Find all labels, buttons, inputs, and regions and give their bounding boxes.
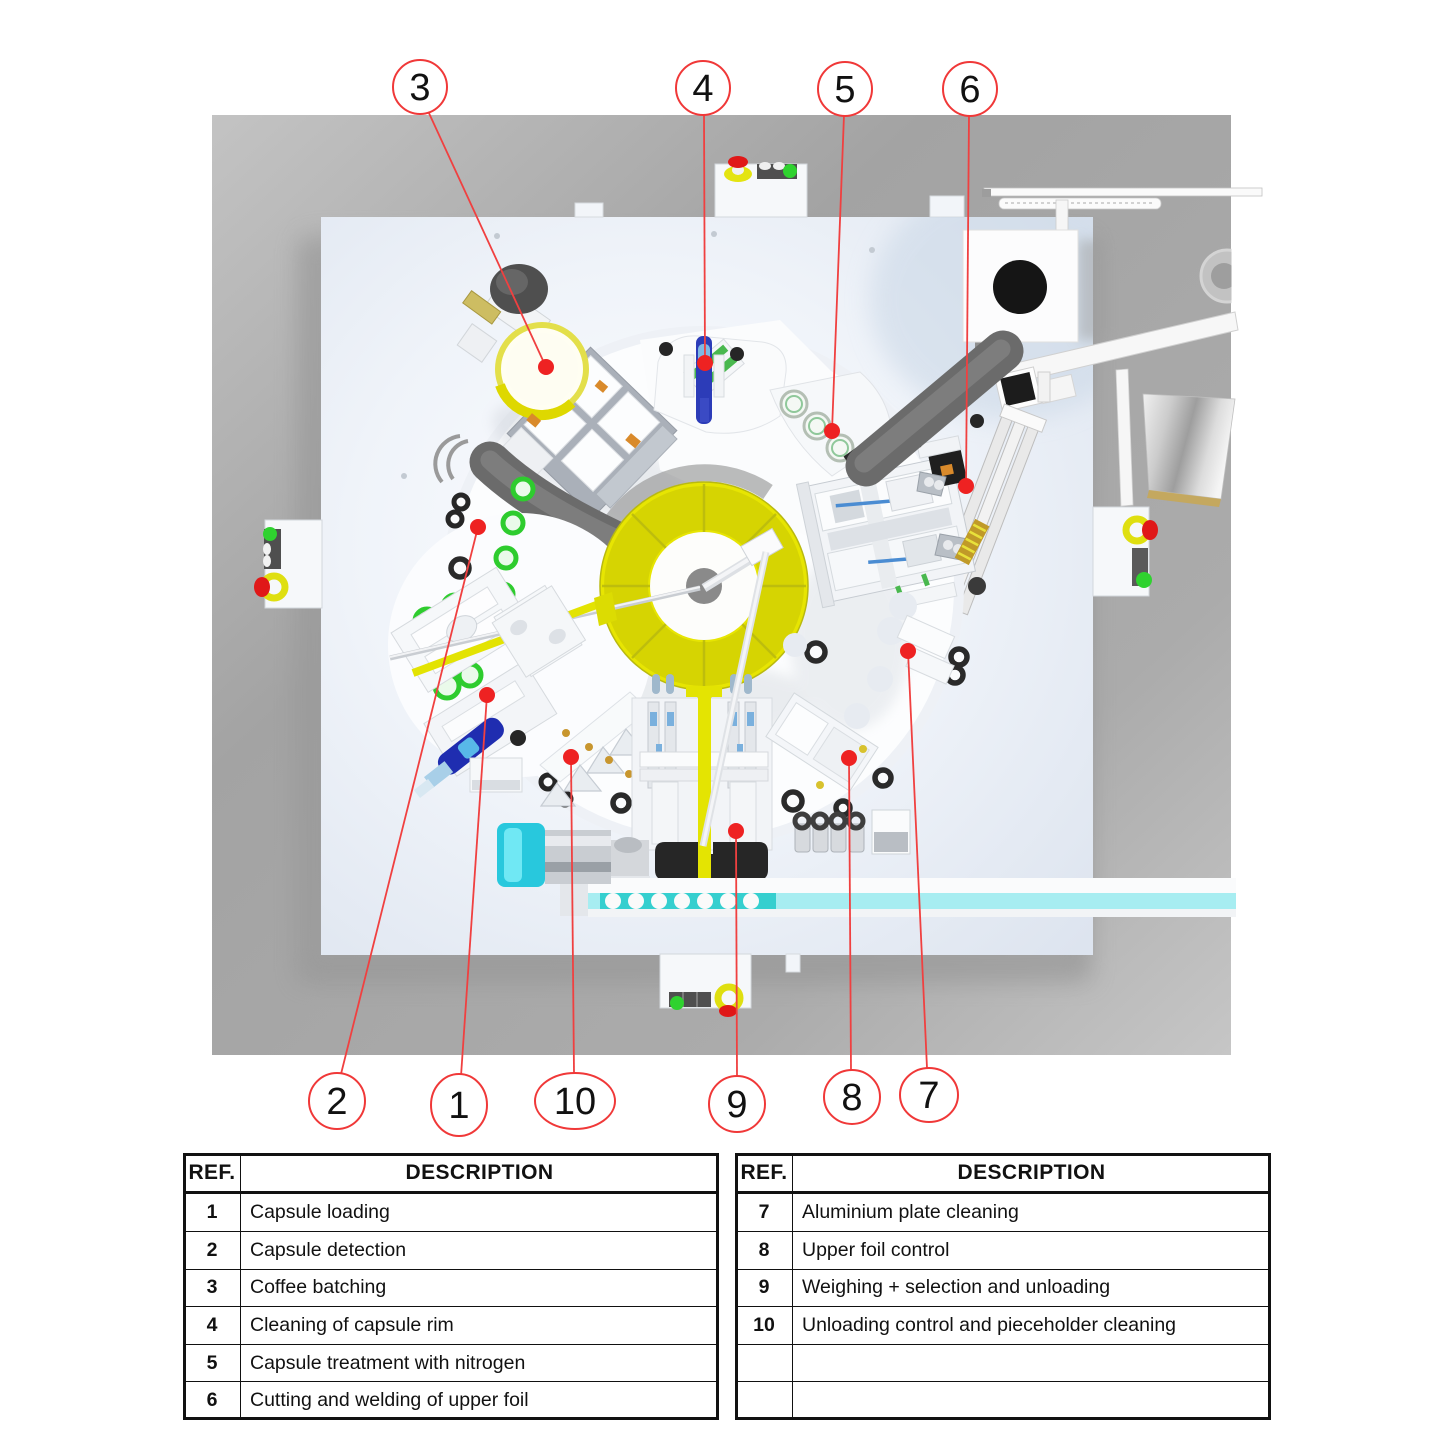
svg-text:2: 2 xyxy=(326,1081,347,1123)
svg-text:3: 3 xyxy=(409,67,430,109)
svg-text:4: 4 xyxy=(692,68,713,110)
svg-text:10: 10 xyxy=(554,1081,596,1123)
svg-text:1: 1 xyxy=(448,1085,469,1127)
svg-text:8: 8 xyxy=(841,1077,862,1119)
svg-text:7: 7 xyxy=(918,1075,939,1117)
svg-text:5: 5 xyxy=(834,69,855,111)
svg-text:9: 9 xyxy=(726,1084,747,1126)
svg-text:6: 6 xyxy=(959,69,980,111)
